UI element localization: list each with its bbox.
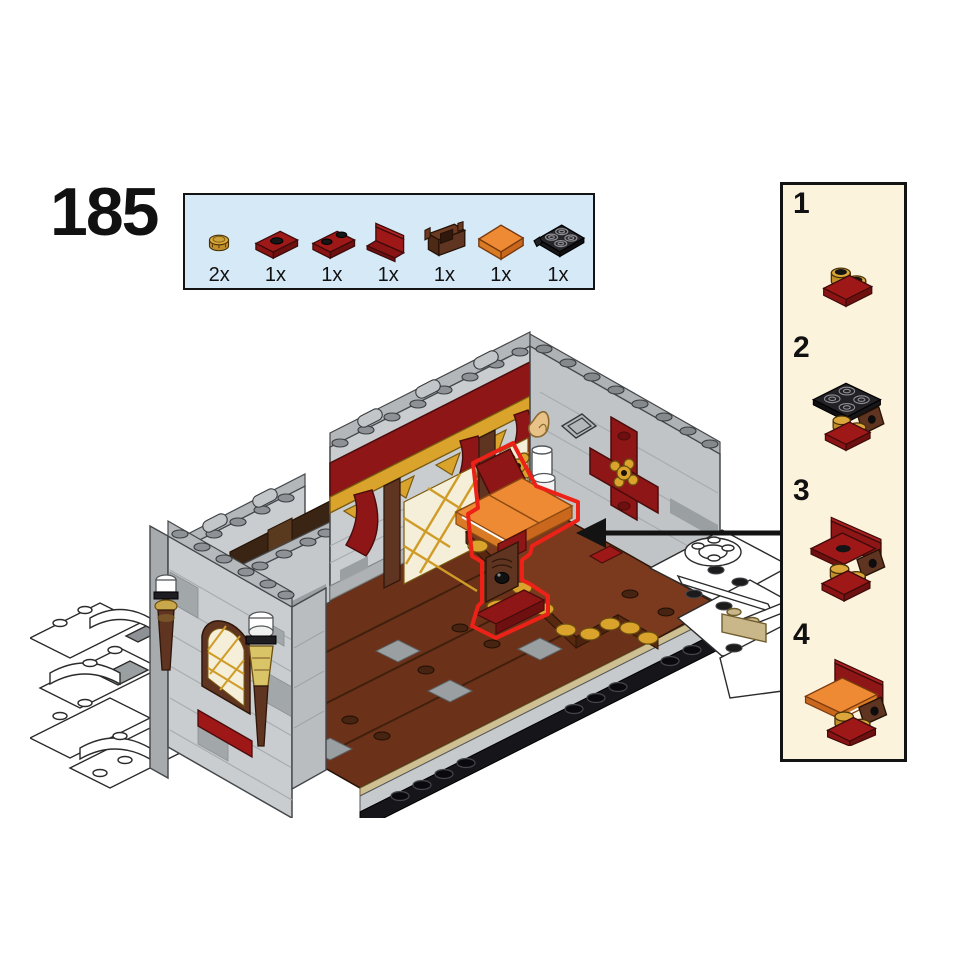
- substep-2-assembly: [800, 367, 892, 453]
- part-item: 1x: [304, 199, 360, 286]
- substep-3: 3: [783, 472, 904, 616]
- part-count: 1x: [378, 264, 399, 286]
- part-item: 1x: [473, 199, 529, 286]
- substep-number: 2: [793, 333, 898, 363]
- main-model-illustration: [30, 318, 790, 818]
- wall-return: [292, 588, 326, 789]
- dark-red-plate-1x2-with-stud-icon: [249, 217, 301, 263]
- part-count: 1x: [547, 264, 568, 286]
- substep-3-assembly: [800, 510, 892, 602]
- part-count: 1x: [490, 264, 511, 286]
- part-count: 1x: [265, 264, 286, 286]
- part-item: 2x: [191, 199, 247, 286]
- parts-callout-box: 2x 1x 1x 1x: [183, 193, 595, 290]
- substep-number: 1: [793, 189, 898, 219]
- part-item: 1x: [529, 199, 587, 286]
- part-count: 1x: [434, 264, 455, 286]
- substep-1-assembly: [800, 223, 892, 309]
- substep-number: 3: [793, 476, 898, 506]
- substep-4-assembly: [800, 654, 892, 746]
- part-count: 2x: [209, 264, 230, 286]
- black-plate-2x2-modified-icon: [529, 215, 587, 263]
- part-item: 1x: [247, 199, 303, 286]
- page-step-number: 185: [50, 178, 157, 246]
- part-item: 1x: [360, 199, 416, 286]
- dark-red-panel-1x2x1-icon: [362, 215, 414, 263]
- substep-2: 2: [783, 329, 904, 473]
- substep-number: 4: [793, 620, 898, 650]
- orange-tile-2x2-icon: [473, 215, 529, 263]
- reddish-brown-bracket-1x2-icon: [418, 215, 470, 263]
- substep-1: 1: [783, 185, 904, 329]
- part-item: 1x: [416, 199, 472, 286]
- instruction-page: { "page": { "step_number": "185", "backg…: [0, 0, 960, 960]
- substeps-sidebar: 1 2: [780, 182, 907, 762]
- part-count: 1x: [321, 264, 342, 286]
- substep-4: 4: [783, 616, 904, 760]
- pearl-gold-round-plate-1x1-icon: [197, 217, 241, 263]
- dark-red-plate-1x2-icon: [306, 217, 358, 263]
- wood-pillar: [384, 478, 400, 588]
